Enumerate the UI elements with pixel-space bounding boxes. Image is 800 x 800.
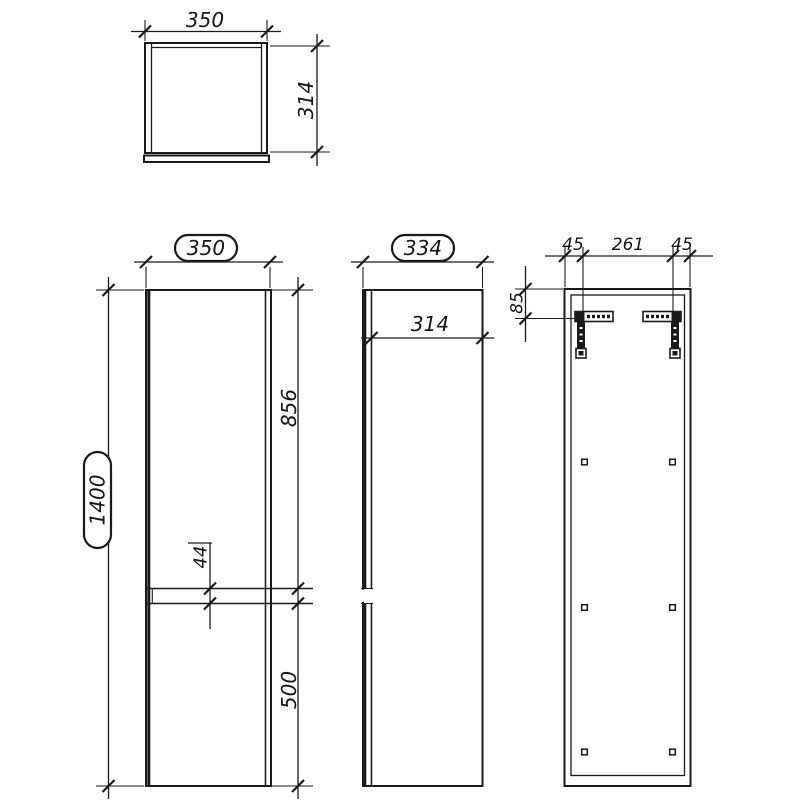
screw-hole (670, 605, 676, 611)
dim-label-lower-door: 500 (277, 671, 301, 709)
dim-label-gap: 44 (191, 546, 212, 569)
cabinet-technical-drawing: 350 314 350 (0, 0, 800, 800)
dim-label-side-total-depth: 334 (404, 236, 442, 260)
dim-label-front-width: 350 (187, 236, 225, 260)
dim-label-top-depth: 314 (294, 81, 318, 119)
dim-label-back-left-offset: 45 (562, 235, 584, 255)
drawing-canvas: 350 314 350 (0, 0, 800, 800)
drawing-background (0, 0, 800, 800)
side-door-gap-notch (360, 590, 374, 602)
dim-label-front-height: 1400 (86, 475, 110, 526)
dim-label-side-carcass-depth: 314 (411, 312, 449, 336)
screw-hole (582, 749, 588, 755)
screw-hole (670, 459, 676, 465)
dim-label-back-top-offset: 85 (508, 292, 528, 314)
screw-hole (582, 459, 588, 465)
dim-label-top-width: 350 (186, 8, 224, 32)
dim-label-back-spacing: 261 (612, 235, 644, 255)
screw-hole (582, 605, 588, 611)
screw-hole (670, 749, 676, 755)
dim-label-upper-door: 856 (277, 389, 301, 427)
dim-label-back-right-offset: 45 (671, 235, 693, 255)
